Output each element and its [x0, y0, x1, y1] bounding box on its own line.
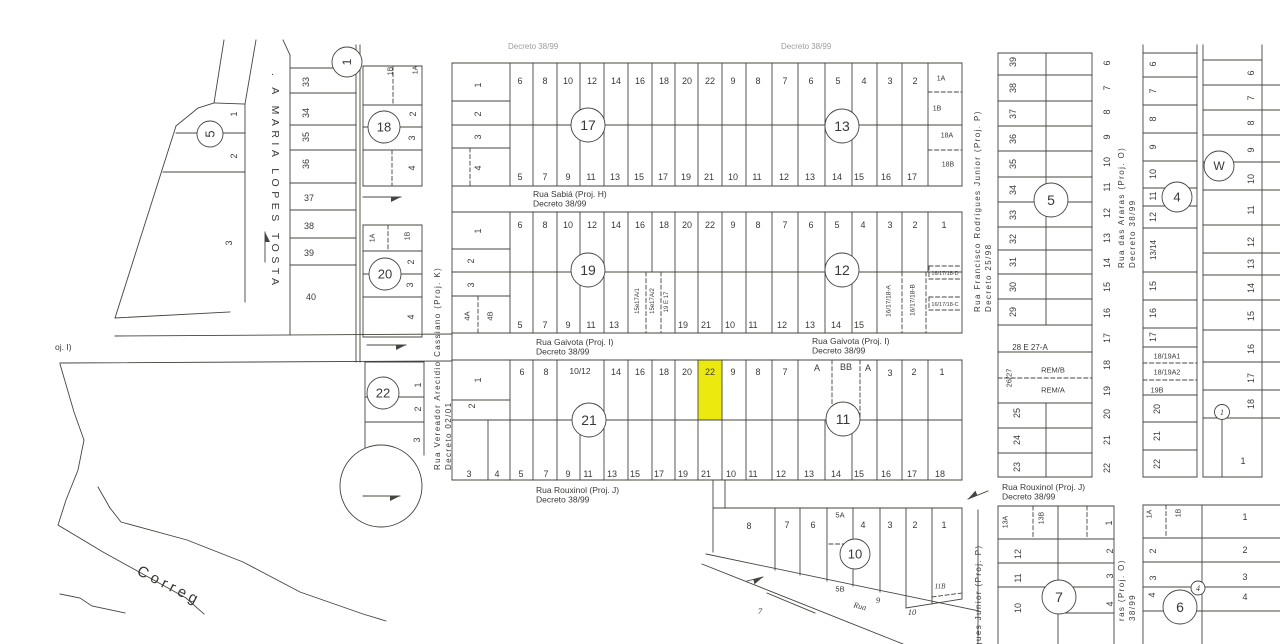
lot-label: 5: [517, 172, 522, 182]
lot-label: 13A: [1002, 515, 1009, 528]
lot-label: 2: [413, 406, 423, 411]
street-label: Decreto 38/99: [812, 346, 866, 356]
lot-label: 3: [466, 282, 476, 287]
lot-label: 31: [1008, 257, 1018, 267]
lot-label: 2: [406, 259, 416, 264]
survey-arrow-flag: [391, 197, 401, 202]
lot-label: 22: [1152, 459, 1162, 469]
lot-label: 25: [1012, 408, 1022, 418]
lot-label: 39: [304, 248, 314, 258]
block-number: 13: [834, 118, 850, 134]
block-number: 4: [1196, 584, 1200, 593]
block-number: 20: [378, 267, 392, 282]
lot-label: 19: [678, 469, 688, 479]
lot-label: 18: [1102, 360, 1112, 370]
lot-label: 14: [831, 320, 841, 330]
lot-label: BB: [840, 362, 852, 372]
block-number: 10: [848, 547, 862, 562]
map-canvas: 151820221713191221111054W176412346810121…: [0, 0, 1280, 644]
lot-label: 33: [1008, 210, 1018, 220]
street-label: Decreto 38/99: [1002, 492, 1056, 502]
lot-label: 15e17A/1: [635, 287, 641, 313]
lot-label: 9: [565, 320, 570, 330]
cadastral-map: 151820221713191221111054W176412346810121…: [0, 0, 1280, 644]
lot-label: 8: [1246, 120, 1256, 125]
lot-label: 10: [908, 607, 917, 617]
lot-label: 6: [517, 76, 522, 86]
lot-label: 7: [782, 76, 787, 86]
lot-label: 3: [1148, 575, 1158, 580]
lot-label: 6: [808, 220, 813, 230]
lot-label: 36: [1008, 134, 1018, 144]
map-line: [214, 103, 245, 104]
lot-label: 3: [473, 134, 483, 139]
lot-label: 9: [1102, 134, 1112, 139]
lot-label: 1A: [412, 65, 419, 74]
lot-label: 3: [887, 220, 892, 230]
block-number: 7: [1055, 589, 1063, 605]
lot-label: 13: [805, 172, 815, 182]
lot-label: 19: [678, 320, 688, 330]
lot-label: 16: [635, 367, 645, 377]
lot-label: 18: [659, 220, 669, 230]
lot-label: 3: [887, 520, 892, 530]
street-label: Decreto 38/99: [781, 42, 832, 51]
stream-label: Correg: [134, 562, 204, 609]
lot-label: 9: [730, 367, 735, 377]
lot-label: 18: [1246, 399, 1256, 409]
lot-label: 13: [609, 320, 619, 330]
lot-label: 17: [1246, 373, 1256, 383]
lot-label: 10: [563, 76, 573, 86]
stream-line: [98, 487, 386, 621]
lot-label: 8: [755, 220, 760, 230]
lot-label: 1: [1240, 456, 1245, 466]
lot-label: 4: [860, 220, 865, 230]
lot-label: 7: [542, 320, 547, 330]
lot-label: 15: [854, 320, 864, 330]
lot-label: 13/14: [1149, 239, 1158, 260]
lot-label: 34: [1008, 185, 1018, 195]
map-line: [176, 108, 198, 126]
lot-label: 39: [1008, 57, 1018, 67]
lot-label: 20: [682, 367, 692, 377]
lot-label: 2: [912, 520, 917, 530]
map-line: [767, 593, 815, 613]
lot-label: 8: [755, 76, 760, 86]
lot-label: 1: [1104, 520, 1114, 525]
street-label-vertical: Decreto 02/01: [444, 402, 453, 470]
lot-label: Rua: [852, 600, 868, 612]
lot-label: 38: [304, 221, 314, 231]
lot-label: 11: [586, 320, 595, 330]
block-number: 6: [1176, 599, 1184, 615]
lot-label: 10: [726, 469, 736, 479]
lot-label: 16/17/18-B: [909, 284, 916, 316]
map-line: [115, 126, 176, 318]
lot-label: 22: [1102, 463, 1112, 473]
lot-label: 7: [1148, 88, 1158, 93]
lot-label: 20: [1102, 409, 1112, 419]
lot-label: 12: [587, 76, 597, 86]
lot-label: 3: [405, 282, 415, 287]
lot-label: 23: [1012, 462, 1022, 472]
lot-label: 4: [406, 314, 416, 319]
lot-label: 4: [407, 165, 417, 170]
lot-label: 2: [467, 403, 477, 408]
lot-label: 16: [1246, 344, 1256, 354]
block-number: 21: [581, 412, 597, 428]
lot-label: 8: [542, 220, 547, 230]
lot-label: 10: [725, 320, 735, 330]
lot-label: 3: [1105, 573, 1115, 578]
lot-label: 19 E 17: [664, 291, 670, 312]
lot-label: 7: [758, 606, 763, 616]
lot-label: 12: [1246, 237, 1256, 247]
lot-label: 18/19A2: [1154, 368, 1181, 377]
lot-label: 6: [808, 76, 813, 86]
lot-label: 8: [543, 367, 548, 377]
street-label: Rua Rouxinol (Proj. J): [1002, 482, 1085, 492]
lot-label: 4: [1147, 592, 1157, 597]
lot-label: 15: [634, 172, 644, 182]
lot-label: 2: [466, 258, 476, 263]
block-number: 1: [340, 58, 354, 65]
lot-label: 20: [1152, 404, 1162, 414]
lot-label: 6: [519, 367, 524, 377]
lot-label: 14: [831, 469, 841, 479]
lot-label: 11: [1148, 191, 1158, 200]
lot-label: 8: [746, 521, 751, 531]
stream-line: [58, 364, 204, 614]
lot-label: 4B: [486, 311, 495, 320]
lot-label: 16: [635, 76, 645, 86]
lot-label: 1B: [404, 231, 411, 240]
lot-label: 6: [1148, 61, 1158, 66]
street-label: Decreto 38/99: [536, 495, 590, 505]
lot-label: 21: [1102, 435, 1112, 445]
map-dashed-line: [932, 593, 962, 597]
lot-label: 10: [1102, 157, 1112, 167]
lot-label: 1A: [1146, 509, 1153, 518]
lot-label: 20: [682, 220, 692, 230]
lot-label: 5: [517, 320, 522, 330]
block-number: 11: [836, 411, 851, 427]
lot-label: 1B: [1175, 508, 1182, 517]
street-label: Decreto 38/99: [508, 42, 559, 51]
lot-label: 17: [1148, 332, 1158, 342]
block-number: 18: [377, 120, 391, 135]
street-label-vertical: . A MARIA LOPES TOSTA: [269, 73, 281, 289]
lot-label: 15: [1102, 282, 1112, 292]
street-label-vertical: Rua Francisco Rodrigues Junior (Proj. P): [973, 110, 982, 312]
stream-line: [60, 594, 125, 613]
lot-label: 7: [784, 520, 789, 530]
lot-label: 12: [776, 469, 786, 479]
lot-label: 2: [473, 111, 483, 116]
lot-label: 14: [611, 220, 621, 230]
lot-label: 4: [861, 76, 866, 86]
lot-label: 33: [301, 77, 311, 87]
block-number: 17: [580, 117, 596, 133]
lot-label: 16/17/18-A: [885, 284, 892, 316]
lot-label: 16/17/18-D: [931, 271, 958, 277]
lot-label: 14: [611, 76, 621, 86]
lot-label: 13: [1246, 259, 1256, 269]
street-label-vertical: Rua das Araras (Proj. O): [1117, 147, 1126, 268]
lot-label: 1: [941, 520, 946, 530]
lot-label: 2: [1148, 548, 1158, 553]
lot-label: 7: [782, 367, 787, 377]
lot-label: 30: [1008, 282, 1018, 292]
map-line: [115, 312, 230, 318]
lot-label: 35: [1008, 159, 1018, 169]
lot-label: 12: [1013, 549, 1023, 559]
lot-label: 3: [887, 76, 892, 86]
lot-label: 7: [1246, 95, 1256, 100]
lot-label: 15: [1148, 281, 1158, 291]
street-label-vertical: Decreto 25/98: [984, 244, 993, 312]
lot-label: 8: [1102, 109, 1112, 114]
lot-label: 1: [473, 82, 483, 87]
lot-label: 16: [1102, 308, 1112, 318]
lot-label: 20: [682, 76, 692, 86]
lot-label: 16: [881, 469, 891, 479]
lot-label: 28 E 27-A: [1012, 343, 1048, 352]
lot-label: 22: [705, 76, 715, 86]
lot-label: 11: [1246, 205, 1256, 214]
lot-label: REM/A: [1041, 386, 1065, 395]
lot-label: 13: [607, 469, 617, 479]
map-line: [198, 103, 214, 108]
lot-label: 5: [834, 220, 839, 230]
lot-label: 18/19A1: [1154, 352, 1181, 361]
lot-label: 8: [542, 76, 547, 86]
lot-label: 6: [1246, 70, 1256, 75]
lot-label: 14: [611, 367, 621, 377]
lot-label: 14: [1246, 283, 1256, 293]
lot-label: 7: [782, 220, 787, 230]
cul-de-sac-circle: [340, 445, 422, 527]
map-line: [245, 40, 256, 104]
lot-label: 15: [1246, 311, 1256, 321]
lot-label: 3: [887, 368, 892, 378]
lot-label: 18B: [942, 161, 955, 168]
lot-label: 9: [1246, 147, 1256, 152]
lot-label: 19B: [1151, 386, 1164, 395]
lot-label: 14: [1102, 258, 1112, 268]
lot-label: 12: [1148, 212, 1158, 222]
map-line: [214, 40, 224, 103]
lot-label: 17: [907, 172, 917, 182]
lot-label: 1: [939, 367, 944, 377]
lot-label: 34: [301, 108, 311, 118]
map-line: [115, 334, 452, 336]
lot-label: 15: [854, 469, 864, 479]
lot-label: 11: [752, 172, 761, 182]
lot-label: 9: [730, 76, 735, 86]
lot-label: 2: [229, 153, 239, 158]
lot-label: 38: [1008, 83, 1018, 93]
lot-label: 40: [306, 292, 316, 302]
lot-label: 4: [860, 520, 865, 530]
lot-label: 6: [517, 220, 522, 230]
lot-label: 6: [810, 520, 815, 530]
lot-label: 11: [748, 320, 757, 330]
lot-label: 4: [1105, 601, 1115, 606]
lot-label: 16/17/18-C: [931, 302, 958, 308]
lot-label: 8: [755, 367, 760, 377]
lot-label: 14: [832, 172, 842, 182]
lot-label: 5B: [835, 585, 844, 594]
lot-label: 13B: [1038, 511, 1045, 524]
lot-label: 11: [1013, 573, 1023, 582]
street-label: Rua Rouxinol (Proj. J): [536, 485, 619, 495]
lot-label: 16: [1148, 308, 1158, 318]
lot-label: 17: [907, 469, 917, 479]
lot-label: 10: [728, 172, 738, 182]
lot-label: 8: [1148, 116, 1158, 121]
lot-label: 11: [1102, 182, 1112, 191]
lot-label: 4: [494, 469, 499, 479]
block-number: 5: [203, 130, 218, 137]
lot-label: 9: [1148, 144, 1158, 149]
lot-label: 15e17A/2: [650, 287, 656, 313]
lot-label: 13: [610, 172, 620, 182]
lot-label: 1: [473, 228, 483, 233]
lot-label: 1: [1242, 512, 1247, 522]
lot-label: 5A: [835, 511, 844, 520]
lot-label: 21: [1152, 431, 1162, 441]
lot-label: 17: [658, 172, 668, 182]
lot-label: 10: [1148, 169, 1158, 179]
lot-label: 18: [935, 469, 945, 479]
lot-label: 9: [565, 469, 570, 479]
lot-label: 12: [587, 220, 597, 230]
lot-label: 7: [1102, 85, 1112, 90]
lot-label: 12: [777, 320, 787, 330]
block-number: 4: [1173, 190, 1180, 205]
lot-label: 12: [1102, 208, 1112, 218]
lot-label: 18: [659, 76, 669, 86]
lot-label: 10/12: [569, 366, 591, 376]
lot-label: 22: [705, 220, 715, 230]
lot-label: 17: [654, 469, 664, 479]
survey-arrow-flag: [390, 496, 400, 501]
lot-label: 4: [1242, 592, 1247, 602]
lot-label: 1B: [387, 66, 394, 75]
lot-label: 17: [1102, 333, 1112, 343]
street-label-vertical: 38/99: [1128, 594, 1137, 621]
street-label-vertical: ras (Proj. O): [1117, 559, 1126, 621]
lot-label: 1: [473, 377, 483, 382]
street-label: Rua Gaivota (Proj. I): [536, 337, 614, 347]
block-number: 22: [376, 386, 390, 401]
lot-label: 11: [586, 172, 595, 182]
map-line: [283, 40, 290, 55]
lot-label: 1: [229, 111, 239, 116]
lot-label: 37: [1008, 109, 1018, 119]
lot-label: 36: [301, 159, 311, 169]
block-number: 12: [834, 262, 850, 278]
lot-label: 3: [466, 469, 471, 479]
street-label: Rua Sabiá (Proj. H): [533, 189, 607, 199]
lot-label: A: [865, 363, 871, 373]
street-label-vertical: Decreto 38/99: [1128, 200, 1137, 268]
lot-label: 13: [804, 469, 814, 479]
street-label: Decreto 38/99: [533, 199, 587, 209]
lot-label: 11: [748, 469, 757, 479]
lot-label: 11: [583, 469, 592, 479]
lot-label: 9: [876, 595, 881, 605]
lot-label: 35: [301, 132, 311, 142]
lot-label: 21: [701, 320, 711, 330]
lot-label: 10: [1013, 603, 1023, 613]
lot-label: 2: [1242, 545, 1247, 555]
lot-label: 26/27: [1005, 369, 1014, 388]
lot-label: 2: [912, 76, 917, 86]
lot-label: 5: [518, 469, 523, 479]
lot-label: 13: [1102, 233, 1112, 243]
lot-label: 5: [835, 76, 840, 86]
lot-label: 12: [779, 172, 789, 182]
street-label: Rua Gaivota (Proj. I): [812, 336, 890, 346]
lot-label: 1A: [937, 75, 946, 82]
lot-label: 2: [911, 367, 916, 377]
lot-label: 16: [635, 220, 645, 230]
lot-label: 3: [407, 135, 417, 140]
block-number: W: [1213, 159, 1225, 173]
lot-label: 19: [1102, 386, 1112, 396]
lot-label: 2: [1105, 548, 1115, 553]
lot-label: 11B: [935, 582, 946, 590]
lot-label: 10: [1246, 174, 1256, 184]
lot-label: 21: [704, 172, 714, 182]
lot-label: 16: [881, 172, 891, 182]
lot-label: 2: [408, 111, 418, 116]
street-label: oj. I): [55, 342, 72, 352]
lot-label: 6: [1102, 60, 1112, 65]
block-number: 19: [580, 262, 596, 278]
lot-label: 4A: [463, 311, 472, 320]
lot-label: 7: [543, 469, 548, 479]
lot-label: 2: [912, 220, 917, 230]
lot-label: 15: [630, 469, 640, 479]
lot-label: 24: [1012, 435, 1022, 445]
lot-label: 37: [304, 193, 314, 203]
lot-label: 15: [854, 172, 864, 182]
lot-label: 18: [659, 367, 669, 377]
lot-label: 3: [1242, 572, 1247, 582]
lot-label: REM/B: [1041, 366, 1065, 375]
lot-label: 1: [413, 382, 423, 387]
lot-label: 3: [224, 240, 234, 245]
survey-arrow-flag: [968, 491, 977, 499]
street-label: Decreto 38/99: [536, 347, 590, 357]
block-number: 1: [1220, 408, 1224, 417]
street-label-vertical: Rua Vereador Arecidio Cassiano (Proj. K): [433, 267, 442, 470]
lot-label: 9: [565, 172, 570, 182]
street-label-vertical: igues Junior (Proj. P): [974, 545, 983, 644]
map-line: [702, 564, 903, 644]
block-number: 5: [1047, 192, 1055, 208]
lot-label: 29: [1008, 307, 1018, 317]
lot-label: 32: [1008, 234, 1018, 244]
lot-label: 13: [805, 320, 815, 330]
lot-label: 1A: [369, 233, 376, 242]
lot-label: 9: [730, 220, 735, 230]
lot-label: 1B: [933, 105, 942, 112]
